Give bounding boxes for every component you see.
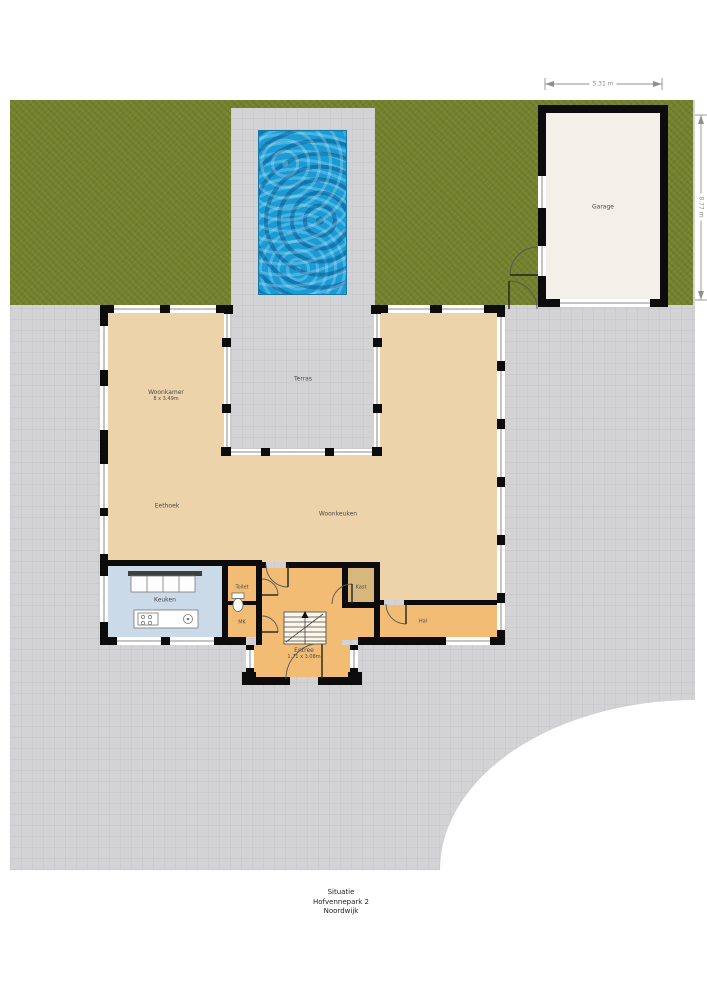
eethoek-label-text: Eethoek: [155, 503, 179, 510]
window-opening: [117, 637, 161, 645]
window-opening: [224, 313, 230, 449]
wall-segment: [256, 560, 262, 645]
window-opening: [374, 313, 380, 449]
garage-width-dimension: 5.31 m: [589, 81, 616, 88]
wall-segment: [161, 637, 170, 645]
column-post: [371, 305, 381, 314]
window-opening: [100, 326, 108, 370]
window-opening: [100, 464, 108, 508]
window-opening: [170, 305, 216, 313]
wall-segment: [100, 637, 117, 645]
woonkamer-dim-text: 8 x 3.49m: [148, 396, 184, 403]
garage-label-text: Garage: [592, 204, 614, 211]
entree-dim-text: 1.71 x 3.08m: [287, 654, 320, 661]
kast-label-text: Kast: [356, 585, 367, 591]
window-opening: [538, 176, 546, 208]
column-post: [224, 305, 233, 314]
column-post: [497, 630, 505, 645]
terras-label: Terras: [294, 376, 312, 383]
column-post: [325, 448, 334, 456]
hal-label-text: Hal: [419, 619, 427, 625]
entree-label-text: Entree: [287, 647, 320, 654]
garage-label: Garage: [592, 204, 614, 211]
wall-segment: [358, 637, 446, 645]
column-post: [497, 419, 505, 429]
column-post: [261, 448, 270, 456]
swimming-pool: [258, 130, 347, 295]
window-opening: [114, 305, 160, 313]
wall-segment: [262, 562, 266, 568]
column-post: [221, 447, 231, 456]
column-post: [222, 338, 231, 347]
wall-segment: [100, 560, 262, 566]
column-post: [497, 593, 505, 603]
window-opening: [442, 305, 484, 313]
wall-segment: [404, 600, 497, 605]
entree-label: Entree 1.71 x 3.08m: [287, 647, 320, 661]
room-toilet: [228, 566, 256, 601]
hal-label: Hal: [419, 619, 427, 626]
column-post: [497, 305, 505, 317]
wall-segment: [228, 601, 256, 605]
mk-label: MK: [238, 620, 246, 627]
wall-segment: [286, 562, 378, 568]
column-post: [497, 477, 505, 487]
window-opening: [446, 637, 490, 645]
column-post: [373, 338, 382, 347]
room-woonkeuken: [230, 455, 378, 562]
title-line-1: Situatie: [241, 888, 441, 898]
window-opening: [170, 637, 214, 645]
room-entree: [262, 568, 342, 645]
window-opening: [388, 305, 430, 313]
window-opening: [224, 449, 380, 455]
keuken-label: Keuken: [154, 597, 176, 604]
wall-segment: [242, 672, 256, 685]
window-opening: [560, 299, 650, 307]
room-woonkamer: [108, 313, 230, 562]
room-entree-east: [342, 608, 374, 640]
wall-segment: [380, 600, 384, 605]
window-opening: [100, 386, 108, 430]
woonkamer-label: Woonkamer 8 x 3.49m: [148, 389, 184, 403]
woonkamer-label-text: Woonkamer: [148, 389, 184, 396]
column-post: [497, 361, 505, 371]
title-line-3: Noordwijk: [241, 907, 441, 917]
keuken-label-text: Keuken: [154, 597, 176, 604]
toilet-label-text: Toilet: [235, 585, 248, 591]
wall-segment: [214, 637, 246, 645]
window-opening: [100, 576, 108, 622]
title-block: Situatie Hofvennepark 2 Noordwijk: [241, 888, 441, 917]
room-hal: [380, 605, 497, 637]
column-post: [222, 404, 231, 413]
terras-label-text: Terras: [294, 376, 312, 383]
eethoek-label: Eethoek: [155, 503, 179, 510]
window-opening: [100, 516, 108, 554]
floor-plan-canvas: Garage Woonkamer 8 x 3.49m Terras Eethoe…: [0, 0, 707, 1000]
kast-label: Kast: [356, 585, 367, 592]
garage-height-text: 8.77 m: [698, 196, 705, 217]
window-opening: [538, 246, 546, 276]
column-post: [497, 535, 505, 545]
woonkeuken-label: Woonkeuken: [319, 511, 357, 518]
mk-label-text: MK: [238, 620, 246, 626]
window-opening: [350, 650, 358, 668]
woonkeuken-label-text: Woonkeuken: [319, 511, 357, 518]
wall-segment: [348, 672, 362, 685]
window-opening: [246, 650, 254, 668]
garage-width-text: 5.31 m: [592, 81, 613, 88]
toilet-label: Toilet: [235, 585, 248, 592]
room-right-wing: [378, 313, 497, 600]
garage-height-dimension: 8.77 m: [698, 193, 705, 220]
title-line-2: Hofvennepark 2: [241, 898, 441, 908]
column-post: [372, 447, 382, 456]
column-post: [373, 404, 382, 413]
